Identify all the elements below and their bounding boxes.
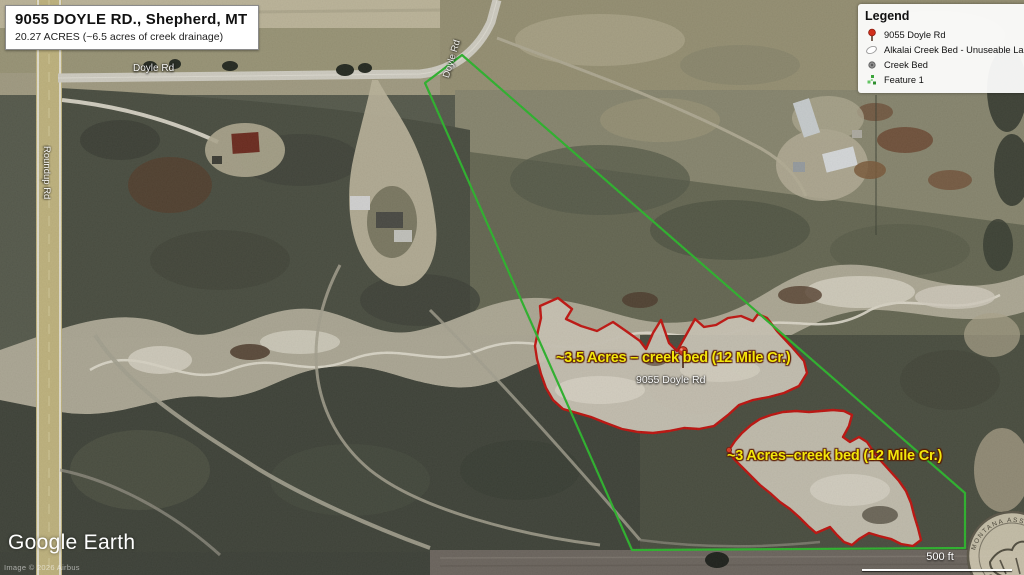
legend-panel: Legend 9055 Doyle Rd Alkalai Creek Bed -… [858, 4, 1024, 93]
property-pin-label: 9055 Doyle Rd [636, 374, 705, 386]
road-label-roundup-rd: Roundup Rd [41, 146, 52, 199]
legend-item-label: Alkalai Creek Bed - Unuseable Land [884, 45, 1024, 55]
dot-icon [865, 58, 878, 72]
imagery-credit: Image © 2026 Airbus [4, 563, 80, 572]
property-subtitle: 20.27 ACRES (~6.5 acres of creek drainag… [15, 31, 249, 43]
google-earth-logo: Google Earth [8, 531, 135, 555]
legend-item-label: 9055 Doyle Rd [884, 30, 946, 40]
property-title-box: 9055 DOYLE RD., Shepherd, MT 20.27 ACRES… [5, 5, 259, 50]
pushpin-icon [865, 28, 878, 42]
legend-item-feature-1: Feature 1 [865, 72, 1023, 87]
legend-item-label: Feature 1 [884, 75, 924, 85]
legend-item-property-pin: 9055 Doyle Rd [865, 27, 1023, 42]
annotation-upper-creek-bed: ~3.5 Acres – creek bed (12 Mile Cr.) [556, 350, 790, 366]
annotation-lower-creek-bed: ~3 Acres–creek bed (12 Mile Cr.) [727, 448, 942, 464]
google-earth-viewport: MONTANA ASSOCIATION OF REALTORS 9055 DOY… [0, 0, 1024, 575]
scale-bar [862, 569, 1012, 571]
scale-bar-label: 500 ft [900, 551, 980, 563]
legend-title: Legend [865, 9, 1023, 23]
legend-item-label: Creek Bed [884, 60, 928, 70]
polygon-outline-icon [865, 43, 878, 57]
legend-item-alkalai-creek-bed: Alkalai Creek Bed - Unuseable Land [865, 42, 1023, 57]
road-label-doyle-rd: Doyle Rd [133, 63, 174, 74]
property-title: 9055 DOYLE RD., Shepherd, MT [15, 11, 249, 28]
feature-cluster-icon [865, 73, 878, 87]
legend-item-creek-bed: Creek Bed [865, 57, 1023, 72]
